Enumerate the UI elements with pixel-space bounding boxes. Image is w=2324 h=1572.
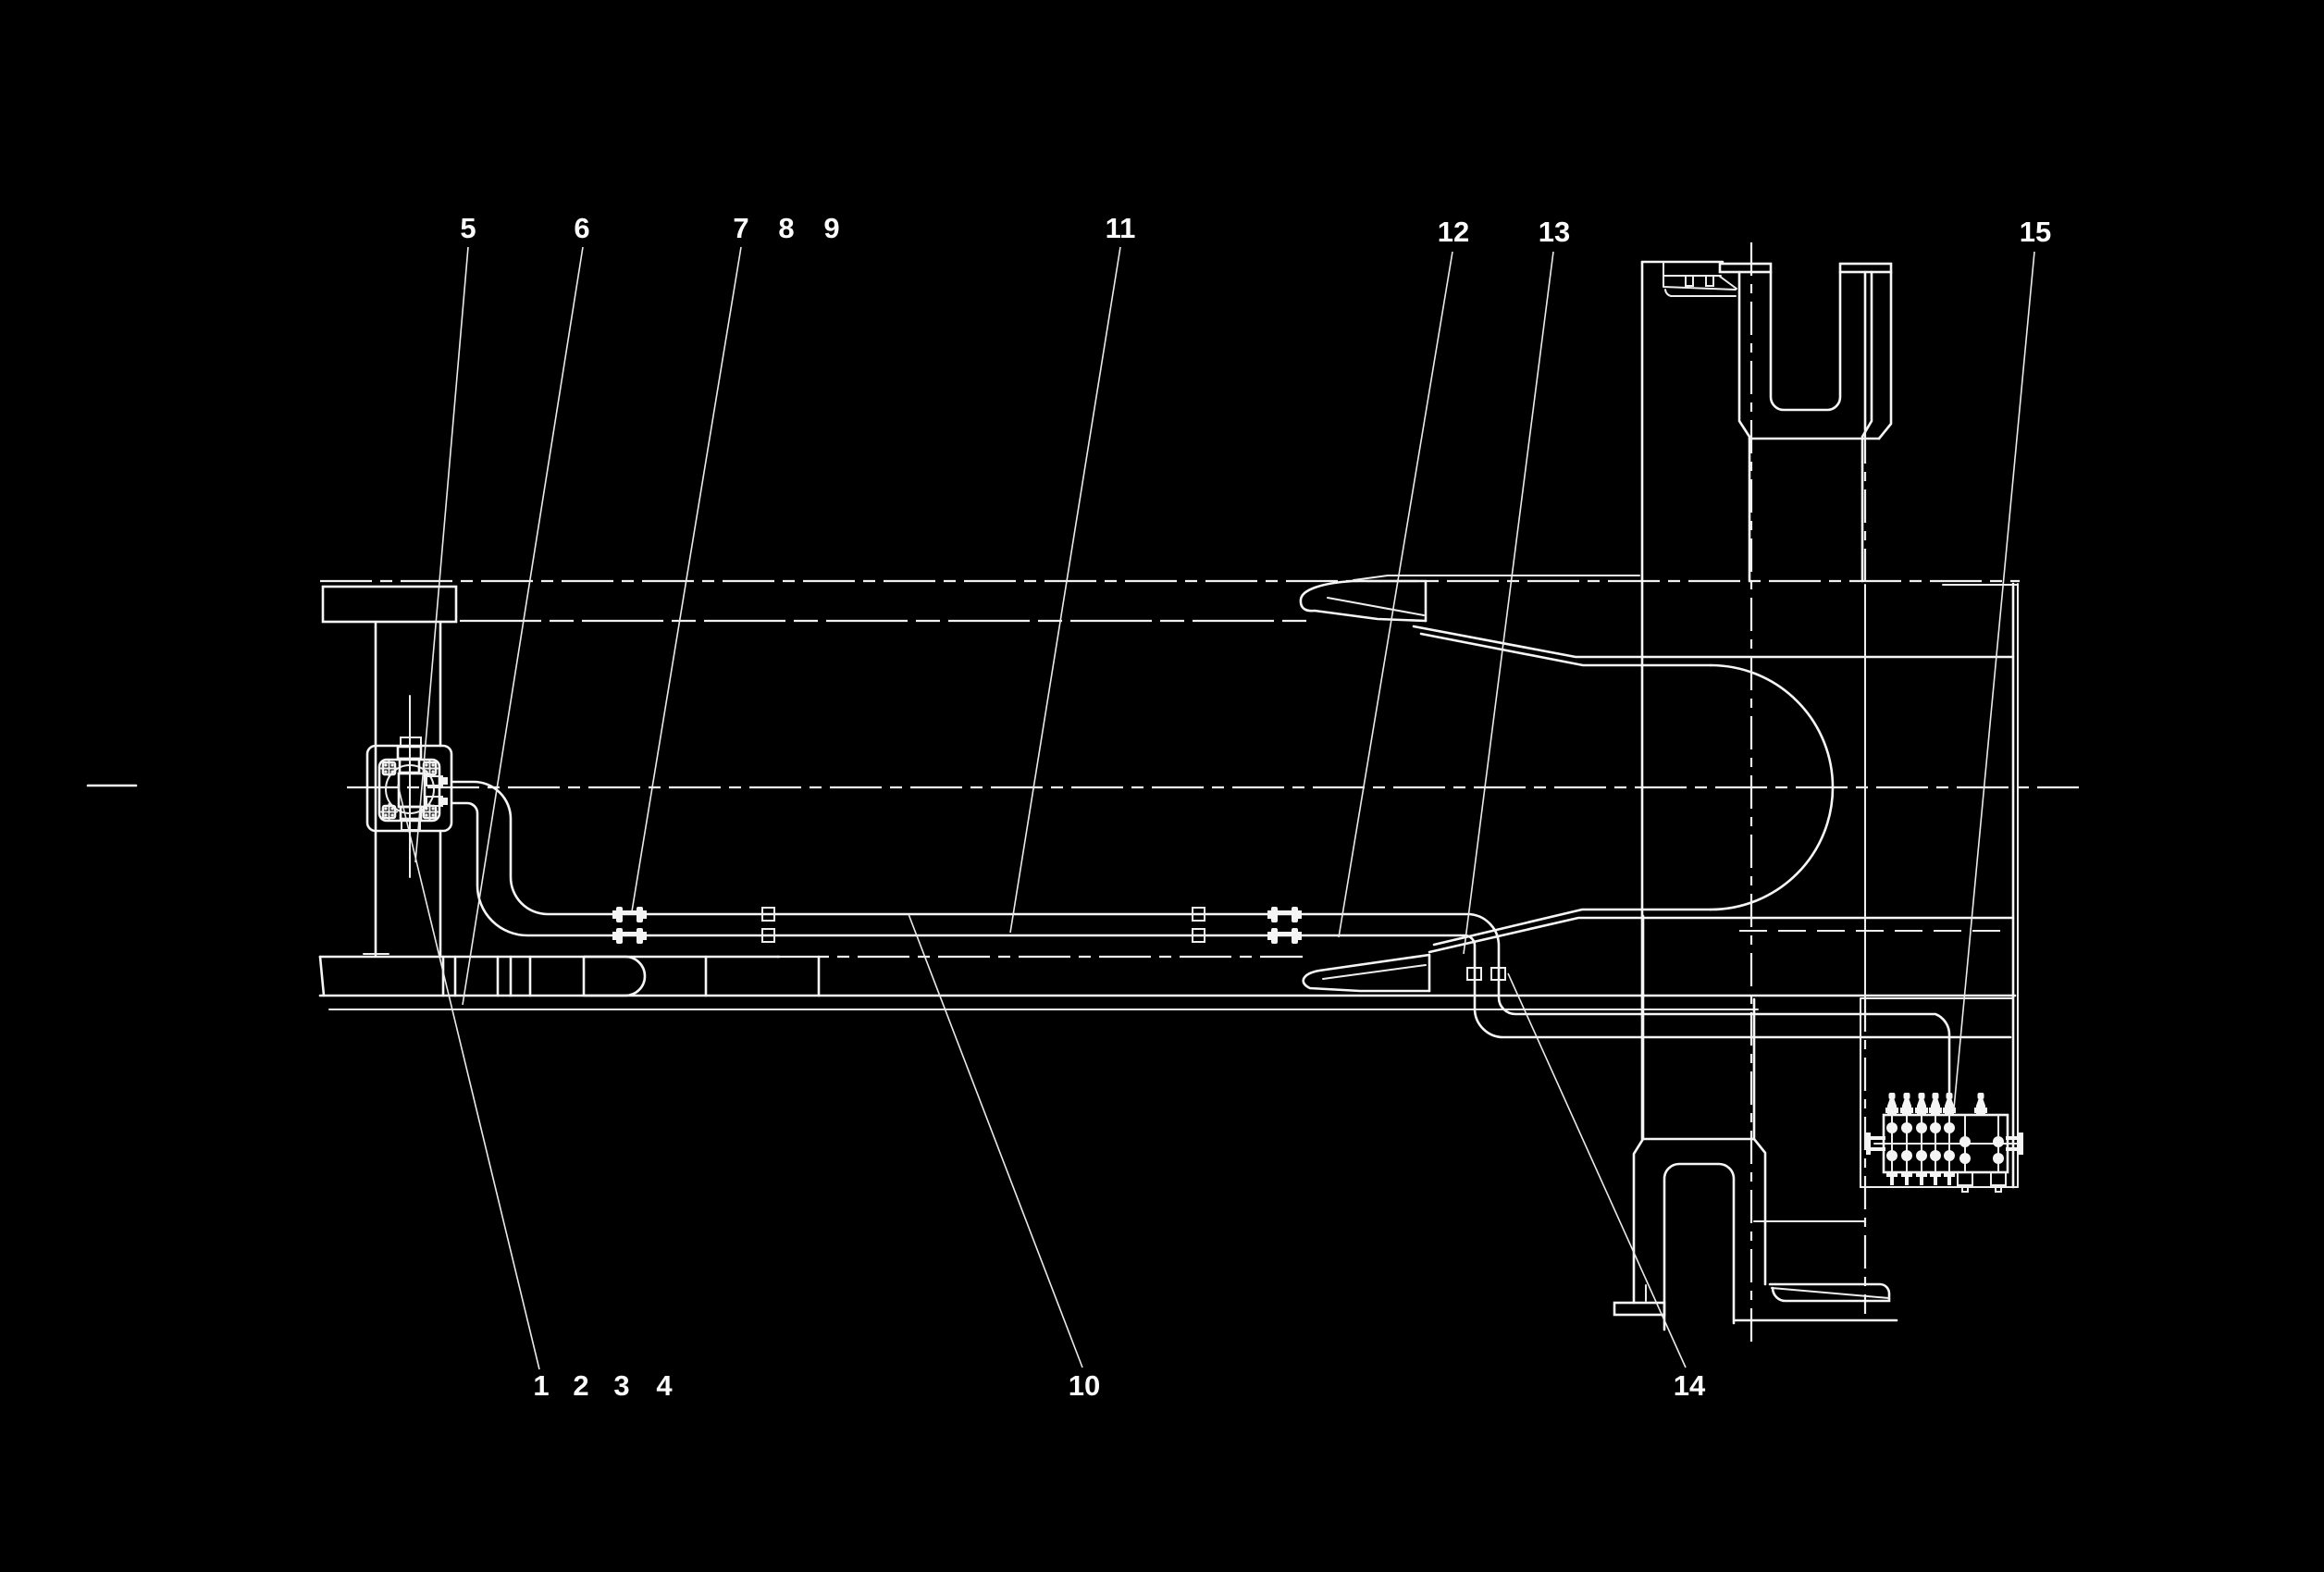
svg-text:2: 2 <box>573 1369 588 1402</box>
svg-text:7: 7 <box>733 212 748 244</box>
svg-text:8: 8 <box>778 212 794 244</box>
svg-text:9: 9 <box>823 212 839 244</box>
svg-text:5: 5 <box>460 212 476 244</box>
svg-text:12: 12 <box>1438 216 1469 248</box>
svg-text:6: 6 <box>574 212 589 244</box>
svg-text:13: 13 <box>1539 216 1570 248</box>
svg-text:4: 4 <box>656 1369 673 1402</box>
svg-text:14: 14 <box>1674 1369 1706 1402</box>
svg-text:11: 11 <box>1106 212 1136 244</box>
svg-text:10: 10 <box>1069 1369 1100 1402</box>
svg-text:1: 1 <box>533 1369 549 1402</box>
svg-text:15: 15 <box>2020 216 2051 248</box>
svg-text:3: 3 <box>613 1369 629 1402</box>
